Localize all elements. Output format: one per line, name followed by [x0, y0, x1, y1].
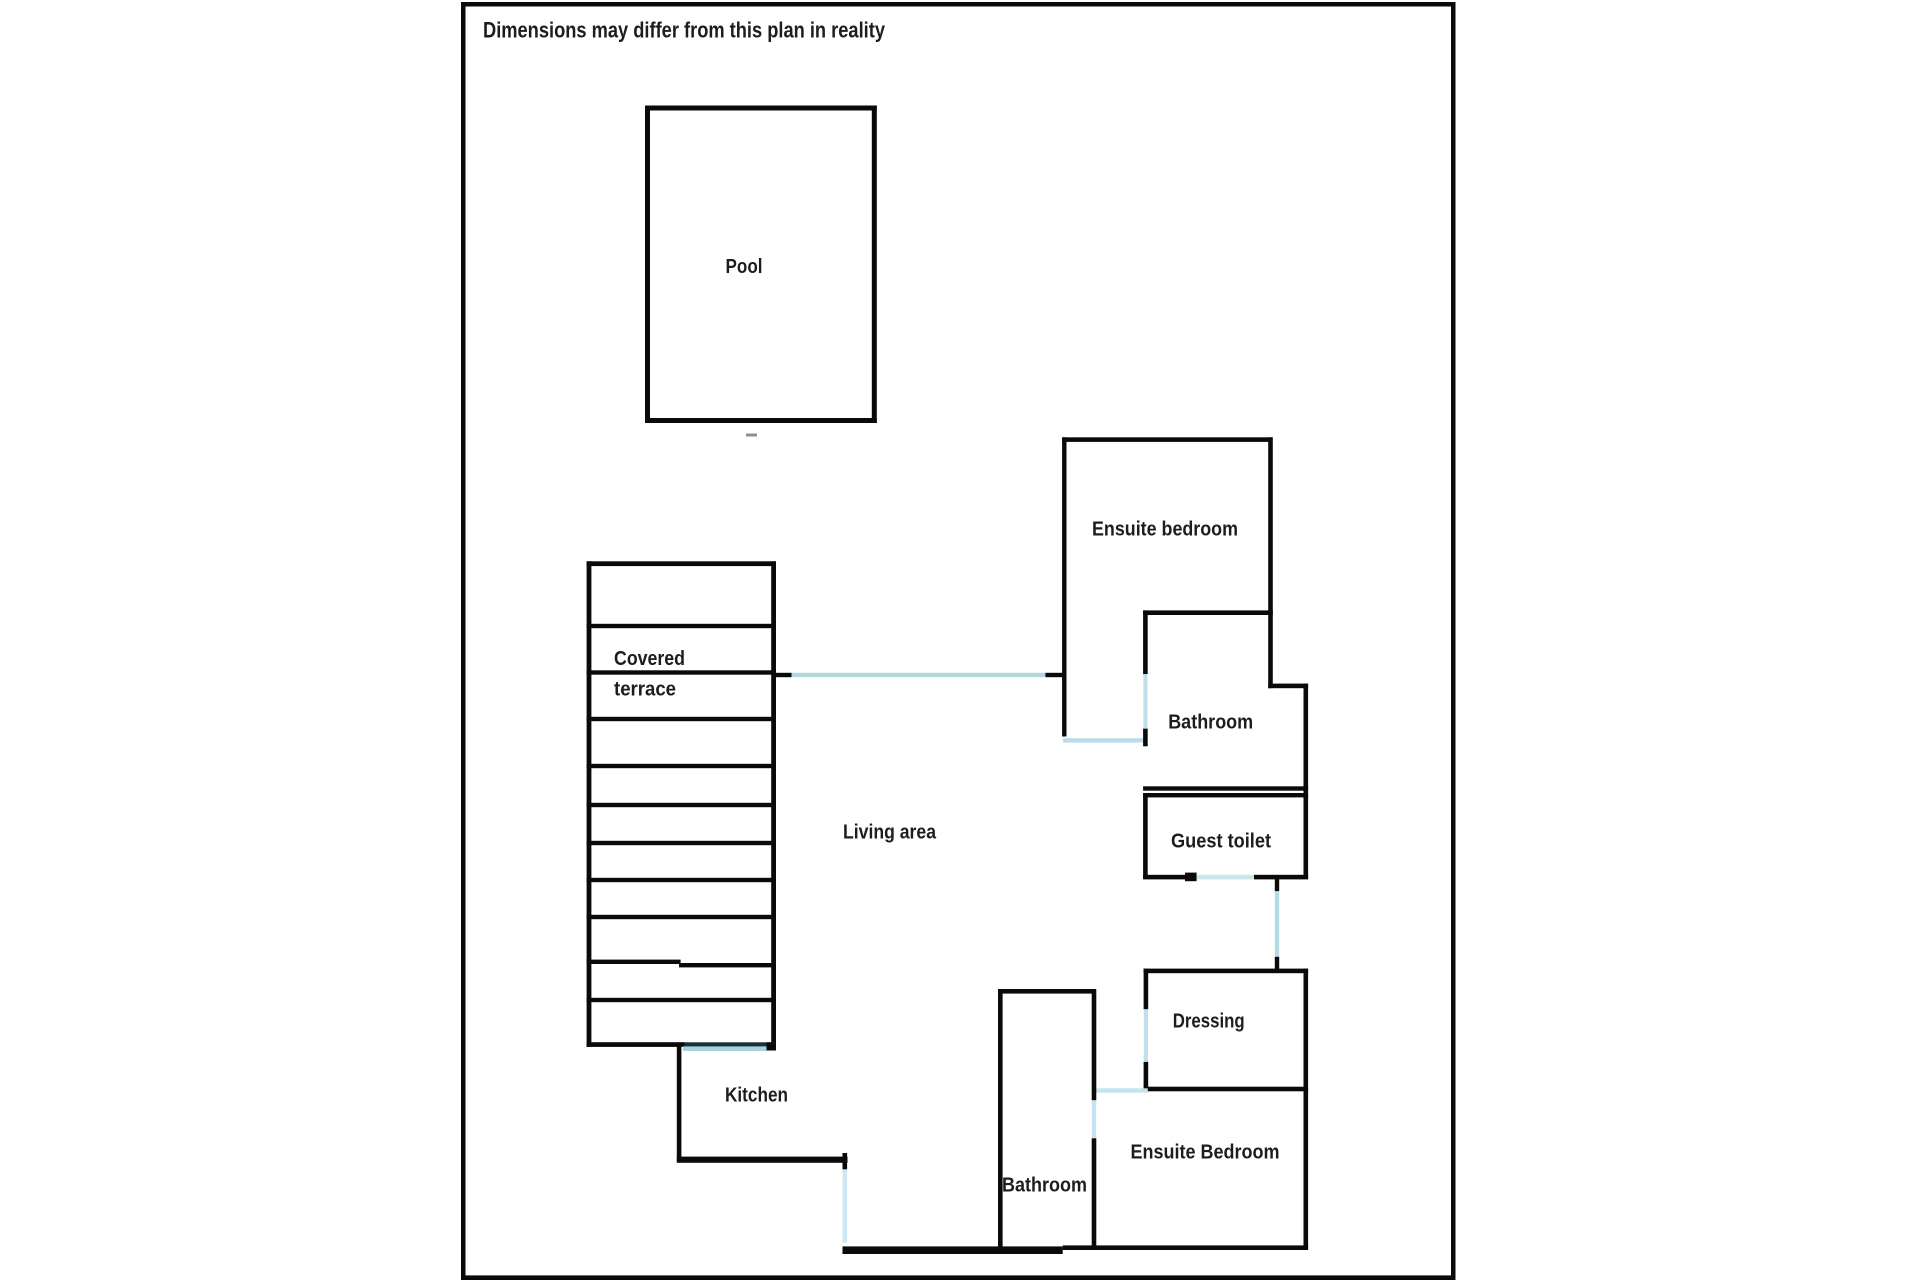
svg-text:Guest toilet: Guest toilet — [1171, 831, 1271, 853]
svg-text:Ensuite bedroom: Ensuite bedroom — [1092, 519, 1238, 541]
svg-text:Dressing: Dressing — [1173, 1011, 1245, 1033]
svg-text:terrace: terrace — [614, 679, 676, 701]
svg-text:Covered: Covered — [614, 648, 685, 670]
svg-text:Ensuite Bedroom: Ensuite Bedroom — [1131, 1142, 1280, 1164]
svg-text:Kitchen: Kitchen — [725, 1085, 788, 1107]
svg-text:Pool: Pool — [726, 256, 763, 278]
svg-text:Living area: Living area — [843, 822, 937, 844]
svg-text:Dimensions may differ from thi: Dimensions may differ from this plan in … — [483, 18, 885, 43]
svg-text:Bathroom: Bathroom — [1002, 1174, 1087, 1196]
svg-text:Bathroom: Bathroom — [1168, 712, 1253, 734]
